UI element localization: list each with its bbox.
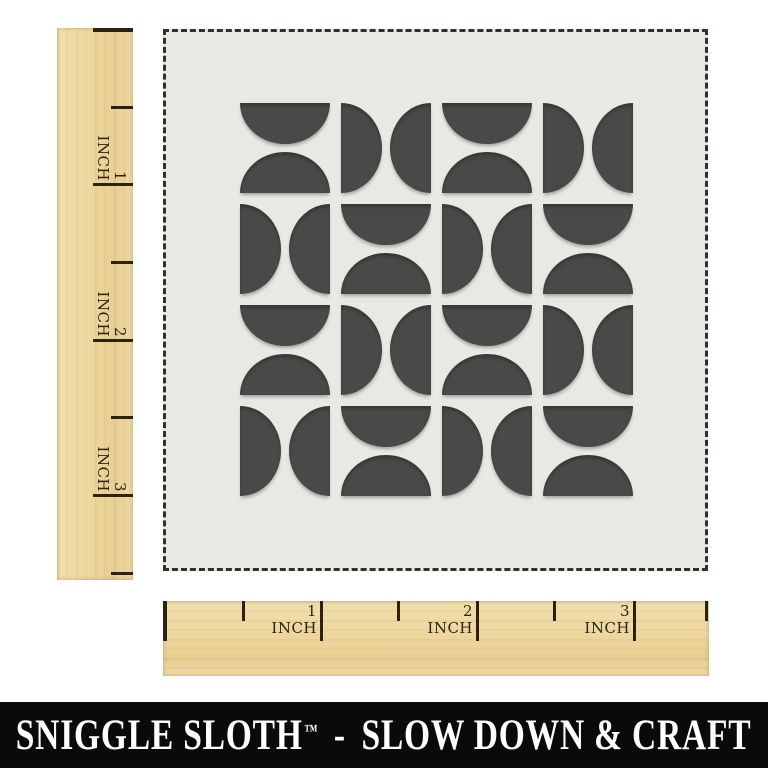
ruler-inch-label-text: 1INCH bbox=[92, 133, 128, 183]
ruler-inch-label: 3INCH bbox=[581, 603, 633, 637]
semicircle-cutout bbox=[289, 406, 330, 496]
separator: - bbox=[334, 712, 346, 759]
stencil-cell bbox=[543, 406, 633, 496]
semicircle-cutout bbox=[240, 354, 330, 395]
semicircle-cutout bbox=[390, 305, 431, 395]
inch-unit: INCH bbox=[94, 289, 111, 337]
ruler-inch-label-text: 2INCH bbox=[92, 289, 128, 339]
stencil-cell bbox=[442, 204, 532, 294]
ruler-tick bbox=[397, 601, 400, 621]
inch-unit: INCH bbox=[424, 620, 473, 637]
semicircle-cutout bbox=[543, 253, 633, 294]
ruler-tick bbox=[111, 416, 133, 419]
stencil-cell bbox=[341, 103, 431, 193]
inch-unit: INCH bbox=[94, 133, 111, 181]
semicircle-cutout bbox=[442, 406, 483, 496]
inch-number: 1 bbox=[268, 603, 317, 620]
semicircle-cutout bbox=[341, 455, 431, 496]
ruler-inch-label: 2INCH bbox=[424, 603, 476, 637]
semicircle-cutout bbox=[543, 103, 584, 193]
semicircle-cutout bbox=[543, 406, 633, 447]
stencil-cell bbox=[442, 406, 532, 496]
ruler-tick bbox=[633, 601, 636, 641]
inch-unit: INCH bbox=[581, 620, 630, 637]
ruler-tick bbox=[93, 183, 133, 186]
semicircle-cutout bbox=[592, 305, 633, 395]
semicircle-cutout bbox=[341, 103, 382, 193]
ruler-tick bbox=[93, 339, 133, 342]
tagline: SLOW DOWN & CRAFT bbox=[362, 712, 752, 759]
semicircle-cutout bbox=[341, 305, 382, 395]
semicircle-cutout bbox=[442, 305, 532, 346]
semicircle-cutout bbox=[341, 204, 431, 245]
ruler-inch-label-text: 3INCH bbox=[92, 444, 128, 494]
semicircle-cutout bbox=[390, 103, 431, 193]
stencil-cell bbox=[442, 305, 532, 395]
stencil-cell bbox=[240, 204, 330, 294]
semicircle-cutout bbox=[240, 204, 281, 294]
ruler-horizontal: 1INCH2INCH3INCH bbox=[163, 601, 709, 676]
semicircle-cutout bbox=[240, 103, 330, 144]
stencil-cell bbox=[341, 204, 431, 294]
ruler-tick bbox=[111, 572, 133, 575]
ruler-vertical: 1INCH2INCH3INCH bbox=[57, 28, 133, 580]
ruler-inch-label: 2INCH bbox=[92, 289, 128, 339]
semicircle-cutout bbox=[289, 204, 330, 294]
stencil-cell bbox=[442, 103, 532, 193]
semicircle-cutout bbox=[341, 253, 431, 294]
ruler-inch-label: 3INCH bbox=[92, 444, 128, 494]
brand-name: SNIGGLE SLOTH bbox=[16, 712, 303, 759]
semicircle-cutout bbox=[491, 204, 532, 294]
ruler-tick bbox=[163, 601, 167, 641]
inch-number: 2 bbox=[111, 289, 128, 337]
stencil-cell bbox=[240, 406, 330, 496]
semicircle-cutout bbox=[240, 305, 330, 346]
semicircle-cutout bbox=[543, 204, 633, 245]
inch-number: 2 bbox=[424, 603, 473, 620]
stencil-pattern bbox=[240, 103, 633, 496]
semicircle-cutout bbox=[543, 455, 633, 496]
product-image: 1INCH2INCH3INCH 1INCH2INCH3INCH SNIGGLE … bbox=[0, 0, 768, 768]
ruler-inch-label: 1INCH bbox=[268, 603, 320, 637]
stencil-cell bbox=[240, 305, 330, 395]
stencil-cell bbox=[341, 305, 431, 395]
stencil-cell bbox=[341, 406, 431, 496]
trademark-symbol: ™ bbox=[305, 721, 319, 740]
semicircle-cutout bbox=[240, 152, 330, 193]
ruler-tick bbox=[242, 601, 245, 621]
brand-banner: SNIGGLE SLOTH™-SLOW DOWN & CRAFT bbox=[0, 702, 768, 768]
inch-number: 1 bbox=[111, 133, 128, 181]
inch-unit: INCH bbox=[94, 444, 111, 492]
inch-unit: INCH bbox=[268, 620, 317, 637]
ruler-tick bbox=[111, 106, 133, 109]
ruler-tick bbox=[320, 601, 323, 641]
semicircle-cutout bbox=[442, 103, 532, 144]
semicircle-cutout bbox=[341, 406, 431, 447]
stencil-cell bbox=[240, 103, 330, 193]
semicircle-cutout bbox=[442, 354, 532, 395]
semicircle-cutout bbox=[543, 305, 584, 395]
semicircle-cutout bbox=[491, 406, 532, 496]
semicircle-cutout bbox=[442, 152, 532, 193]
stencil-cell bbox=[543, 305, 633, 395]
stencil-sheet bbox=[163, 29, 708, 571]
ruler-tick bbox=[93, 28, 133, 32]
semicircle-cutout bbox=[240, 406, 281, 496]
banner-text: SNIGGLE SLOTH™-SLOW DOWN & CRAFT bbox=[16, 711, 752, 760]
inch-number: 3 bbox=[581, 603, 630, 620]
semicircle-cutout bbox=[592, 103, 633, 193]
stencil-cell bbox=[543, 103, 633, 193]
ruler-tick bbox=[553, 601, 556, 621]
stencil-cell bbox=[543, 204, 633, 294]
ruler-inch-label: 1INCH bbox=[92, 133, 128, 183]
inch-number: 3 bbox=[111, 444, 128, 492]
ruler-tick bbox=[93, 494, 133, 497]
ruler-tick bbox=[111, 261, 133, 264]
ruler-tick bbox=[476, 601, 479, 641]
semicircle-cutout bbox=[442, 204, 483, 294]
ruler-tick bbox=[705, 601, 708, 621]
